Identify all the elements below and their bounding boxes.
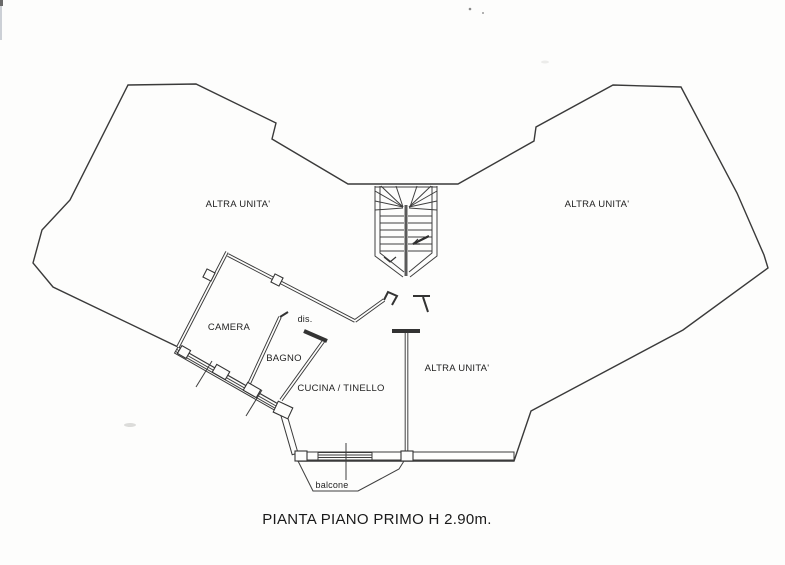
stair-down-arrow bbox=[384, 257, 396, 262]
balcony bbox=[298, 443, 404, 491]
label-balcone: balcone bbox=[316, 480, 349, 490]
stair-left-wall-outer bbox=[375, 186, 403, 277]
entry-jamb-left bbox=[384, 292, 397, 305]
label-bagno: BAGNO bbox=[266, 353, 302, 364]
label-altra-unita-right: ALTRA UNITA' bbox=[565, 199, 630, 210]
label-dis: dis. bbox=[298, 314, 313, 324]
bagno-wall-cap bbox=[304, 331, 327, 341]
label-cucina-tinello: CUCINA / TINELLO bbox=[297, 383, 384, 394]
block-balcony-left bbox=[295, 451, 307, 461]
camera-door-tick bbox=[280, 312, 288, 317]
building-outline bbox=[33, 84, 768, 461]
block-window-mid-1 bbox=[212, 364, 229, 379]
block-balcony-right bbox=[401, 451, 413, 461]
balcony-outline bbox=[298, 461, 404, 491]
stair-right-wall-outer bbox=[410, 186, 437, 277]
floor-plan-svg: ALTRA UNITA' ALTRA UNITA' ALTRA UNITA' C… bbox=[0, 0, 785, 565]
scanned-floor-plan-sheet: ALTRA UNITA' ALTRA UNITA' ALTRA UNITA' C… bbox=[0, 0, 785, 565]
plan-caption: PIANTA PIANO PRIMO H 2.90m. bbox=[262, 511, 492, 528]
label-altra-unita-bottom: ALTRA UNITA' bbox=[425, 363, 490, 374]
entry-jamb-right bbox=[413, 296, 430, 312]
block-window-mid-2 bbox=[243, 382, 260, 397]
label-altra-unita-left: ALTRA UNITA' bbox=[206, 199, 271, 210]
exterior-outline-path bbox=[33, 84, 768, 461]
balcony-window bbox=[318, 453, 372, 461]
staircase bbox=[375, 186, 437, 277]
label-camera: CAMERA bbox=[208, 322, 251, 333]
wall-blocks bbox=[177, 269, 413, 461]
apartment-walls bbox=[178, 252, 430, 452]
